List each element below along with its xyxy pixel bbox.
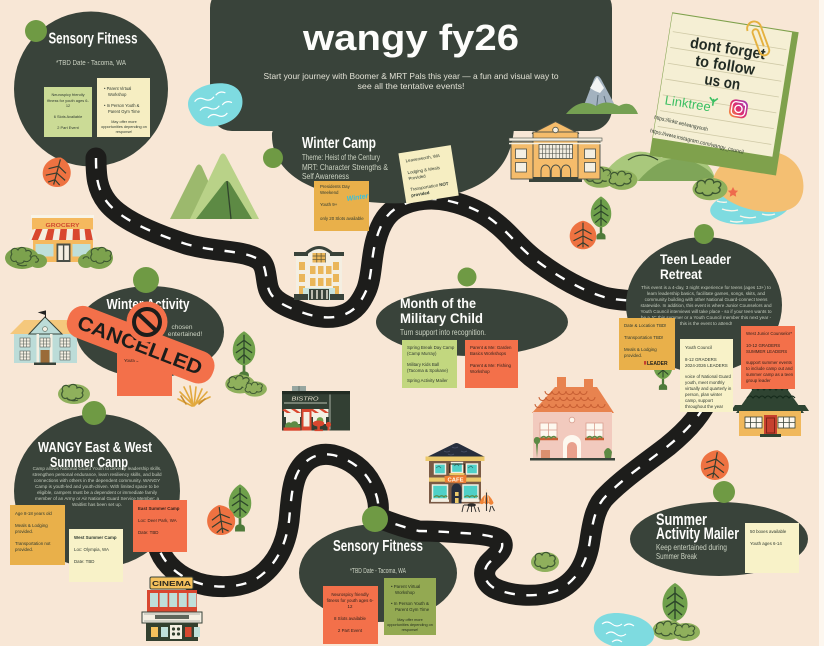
svg-text:Date: TBD: Date: TBD bbox=[138, 530, 158, 535]
svg-text:Start your journey with Boomer: Start your journey with Boomer & MRT Pal… bbox=[264, 71, 559, 81]
svg-text:Spring Activity Mailer: Spring Activity Mailer bbox=[407, 378, 448, 383]
svg-text:BISTRO: BISTRO bbox=[292, 397, 320, 403]
svg-text:provided.: provided. bbox=[624, 353, 642, 358]
svg-text:support summer events: support summer events bbox=[746, 360, 793, 365]
svg-text:eligible, campers must be a de: eligible, campers must be a dependent or… bbox=[37, 490, 158, 495]
svg-text:Spring Break Day Camp: Spring Break Day Camp bbox=[407, 345, 455, 350]
svg-text:Sensory Fitness: Sensory Fitness bbox=[333, 538, 423, 555]
svg-text:entertained!: entertained! bbox=[168, 331, 203, 338]
svg-text:*TBD Date - Tacoma, WA: *TBD Date - Tacoma, WA bbox=[350, 568, 406, 575]
svg-text:(Camp Murray): (Camp Murray) bbox=[407, 351, 437, 356]
svg-text:Youth Council: Youth Council bbox=[685, 345, 712, 350]
svg-text:Loc: Deer Park, WA: Loc: Deer Park, WA bbox=[138, 518, 177, 523]
svg-text:GROCERY: GROCERY bbox=[46, 223, 80, 229]
svg-text:Waitlist has been set up.: Waitlist has been set up. bbox=[72, 502, 122, 507]
svg-text:• Parent Virtual: • Parent Virtual bbox=[104, 86, 131, 91]
svg-text:summer camp as a teen: summer camp as a teen bbox=[746, 372, 794, 377]
svg-text:this is the event to attend!: this is the event to attend! bbox=[680, 321, 732, 326]
svg-text:Camp allows National Guard You: Camp allows National Guard Youth to deve… bbox=[33, 466, 162, 471]
svg-text:person, plan winter: person, plan winter bbox=[685, 392, 723, 397]
svg-text:Teen Leader: Teen Leader bbox=[660, 251, 731, 267]
svg-text:• In Person Youth &: • In Person Youth & bbox=[391, 601, 429, 606]
svg-text:2 Part Event: 2 Part Event bbox=[338, 628, 363, 633]
svg-text:response!: response! bbox=[402, 628, 419, 632]
svg-text:Youth ages 6-14: Youth ages 6-14 bbox=[750, 541, 782, 546]
svg-text:Parent & Me: Fishing: Parent & Me: Fishing bbox=[470, 363, 512, 368]
svg-text:Month of the: Month of the bbox=[400, 295, 476, 311]
svg-text:Age 8-18 years old: Age 8-18 years old bbox=[15, 511, 52, 516]
svg-text:50 boxes available: 50 boxes available bbox=[750, 529, 787, 534]
svg-text:Transportation TBD!: Transportation TBD! bbox=[624, 335, 663, 340]
svg-text:Date: TBD: Date: TBD bbox=[74, 559, 94, 564]
svg-text:provided.: provided. bbox=[15, 529, 33, 534]
svg-text:Retreat: Retreat bbox=[660, 266, 702, 282]
svg-text:This event is a 4-day, 3 night: This event is a 4-day, 3 night experienc… bbox=[641, 285, 771, 290]
svg-text:group leader: group leader bbox=[746, 378, 771, 383]
svg-text:12: 12 bbox=[348, 604, 353, 609]
svg-text:provided.: provided. bbox=[15, 547, 33, 552]
svg-text:strengthen personal endurance,: strengthen personal endurance, learn res… bbox=[32, 472, 162, 477]
svg-text:Camp is youth-led and youth-dr: Camp is youth-led and youth-driven. With… bbox=[35, 484, 159, 489]
svg-text:opportunities depending on: opportunities depending on bbox=[387, 623, 433, 627]
svg-text:Sensory Fitness: Sensory Fitness bbox=[49, 31, 138, 48]
svg-text:see all the tentative events!: see all the tentative events! bbox=[358, 81, 465, 91]
svg-text:Military Kids Ball: Military Kids Ball bbox=[407, 362, 439, 367]
svg-text:Loc: Olympia, WA: Loc: Olympia, WA bbox=[74, 547, 109, 552]
svg-text:camp, support: camp, support bbox=[685, 398, 714, 403]
svg-text:response!: response! bbox=[116, 130, 133, 134]
svg-text:virtually and quarterly in: virtually and quarterly in bbox=[685, 386, 732, 391]
svg-text:to include camp out and: to include camp out and bbox=[746, 366, 793, 371]
svg-text:Basics Workshops: Basics Workshops bbox=[470, 351, 507, 356]
svg-text:chosen: chosen bbox=[172, 324, 193, 331]
svg-text:Meals & Lodging: Meals & Lodging bbox=[624, 347, 657, 352]
svg-text:10-12 GRADERS: 10-12 GRADERS bbox=[746, 343, 780, 348]
svg-text:2 Part Event: 2 Part Event bbox=[57, 125, 79, 130]
svg-text:Date & Location TBD!: Date & Location TBD! bbox=[624, 323, 666, 328]
svg-text:Theme: Heist of the Century: Theme: Heist of the Century bbox=[302, 152, 381, 162]
svg-text:Turn support into recognition.: Turn support into recognition. bbox=[400, 328, 486, 337]
svg-text:Presidents Day: Presidents Day bbox=[320, 184, 351, 189]
svg-text:*TBD Date - Tacoma, WA: *TBD Date - Tacoma, WA bbox=[56, 58, 126, 67]
svg-text:East Summer Camp: East Summer Camp bbox=[138, 506, 180, 511]
svg-text:Parent Gym Time: Parent Gym Time bbox=[108, 109, 141, 114]
svg-text:Summer Break: Summer Break bbox=[656, 551, 698, 561]
svg-text:connections with others in the: connections with others in the dependent… bbox=[34, 478, 160, 483]
svg-text:learn leadership basics, facil: learn leadership basics, facilitate game… bbox=[647, 291, 766, 296]
svg-text:Meals & Lodging: Meals & Lodging bbox=[15, 523, 48, 528]
svg-text:• Parent Virtual: • Parent Virtual bbox=[391, 584, 420, 589]
svg-text:May offer more: May offer more bbox=[111, 120, 136, 124]
svg-text:West Junior Counselor*: West Junior Counselor* bbox=[746, 331, 792, 336]
svg-text:Youth 9+: Youth 9+ bbox=[320, 202, 338, 207]
svg-text:6 Slots Available: 6 Slots Available bbox=[54, 114, 82, 119]
svg-text:12: 12 bbox=[66, 103, 70, 108]
svg-text:Winter Camp: Winter Camp bbox=[302, 135, 376, 152]
svg-text:Parent Gym Time: Parent Gym Time bbox=[395, 607, 430, 612]
svg-text:LEADER: LEADER bbox=[647, 361, 668, 367]
svg-text:Workshop: Workshop bbox=[395, 590, 415, 595]
svg-text:Workshop: Workshop bbox=[470, 369, 490, 374]
svg-text:Transportation not: Transportation not bbox=[15, 541, 51, 546]
svg-text:Activity Mailer: Activity Mailer bbox=[656, 525, 739, 543]
svg-text:8 Slots available: 8 Slots available bbox=[334, 616, 367, 621]
svg-text:8-12 GRADERS: 8-12 GRADERS bbox=[685, 357, 717, 362]
svg-text:Workshop: Workshop bbox=[108, 92, 127, 97]
svg-text:statewide. In addition, this e: statewide. In addition, this event is wh… bbox=[641, 303, 772, 308]
svg-text:Weekend: Weekend bbox=[320, 190, 339, 195]
svg-text:• In Person Youth &: • In Person Youth & bbox=[104, 103, 140, 108]
svg-text:wangy fy26: wangy fy26 bbox=[302, 17, 519, 58]
svg-text:Parent & Me: Garden: Parent & Me: Garden bbox=[470, 345, 512, 350]
svg-text:youth, meet monthly: youth, meet monthly bbox=[685, 380, 725, 385]
svg-text:throughout the year: throughout the year bbox=[685, 404, 724, 409]
svg-text:SUMMER LEADERS: SUMMER LEADERS bbox=[746, 349, 787, 354]
svg-text:community building with other: community building with other National G… bbox=[645, 297, 769, 302]
svg-text:CAFE: CAFE bbox=[448, 478, 465, 484]
svg-text:opportunities depending on: opportunities depending on bbox=[101, 125, 147, 129]
svg-text:Military Child: Military Child bbox=[400, 310, 483, 326]
svg-text:Neurospicy friendly: Neurospicy friendly bbox=[331, 592, 369, 597]
svg-text:voice of National Guard: voice of National Guard bbox=[685, 374, 731, 379]
svg-text:Self Awareness: Self Awareness bbox=[302, 171, 349, 181]
svg-text:2024-2026 LEADERS: 2024-2026 LEADERS bbox=[685, 363, 728, 368]
svg-text:Youth Council interviews will: Youth Council interviews will take place… bbox=[640, 309, 772, 314]
svg-text:May offer more: May offer more bbox=[397, 618, 422, 622]
svg-text:fitness for youth ages 6-: fitness for youth ages 6- bbox=[327, 598, 374, 603]
svg-text:CINEMA: CINEMA bbox=[152, 579, 192, 588]
svg-text:only 20 Slots available: only 20 Slots available bbox=[320, 216, 364, 221]
svg-text:(Tacoma & Spokane): (Tacoma & Spokane) bbox=[407, 368, 449, 373]
svg-text:Neurospicy friendly: Neurospicy friendly bbox=[51, 92, 84, 97]
svg-text:West Summer Camp: West Summer Camp bbox=[74, 535, 117, 540]
